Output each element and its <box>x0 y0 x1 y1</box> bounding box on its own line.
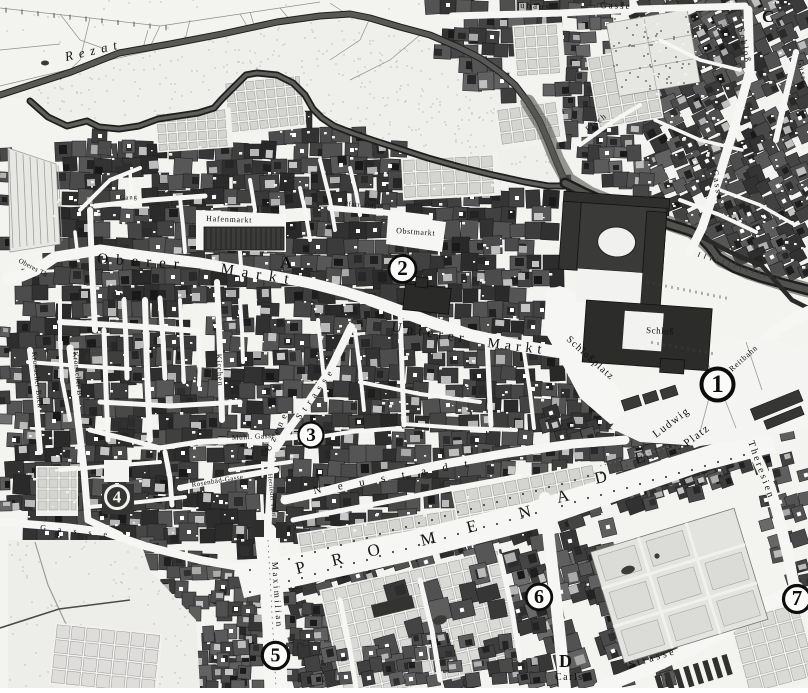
svg-text:Gasse: Gasse <box>600 0 632 11</box>
svg-text:Carls.: Carls. <box>555 672 588 683</box>
svg-text:A: A <box>280 253 294 272</box>
svg-text:4: 4 <box>113 488 122 507</box>
svg-text:3: 3 <box>306 425 316 446</box>
svg-text:7: 7 <box>792 586 803 610</box>
svg-text:2: 2 <box>397 256 408 280</box>
svg-text:C: C <box>762 7 776 26</box>
svg-text:Hafenmarkt: Hafenmarkt <box>206 214 252 225</box>
svg-text:D: D <box>559 651 574 671</box>
svg-text:1: 1 <box>711 371 724 398</box>
svg-text:5: 5 <box>271 645 281 667</box>
svg-text:Schloß: Schloß <box>646 325 675 336</box>
svg-text:Gang: Gang <box>120 194 139 202</box>
svg-text:uhaus: uhaus <box>520 0 551 12</box>
svg-text:6: 6 <box>534 586 544 608</box>
